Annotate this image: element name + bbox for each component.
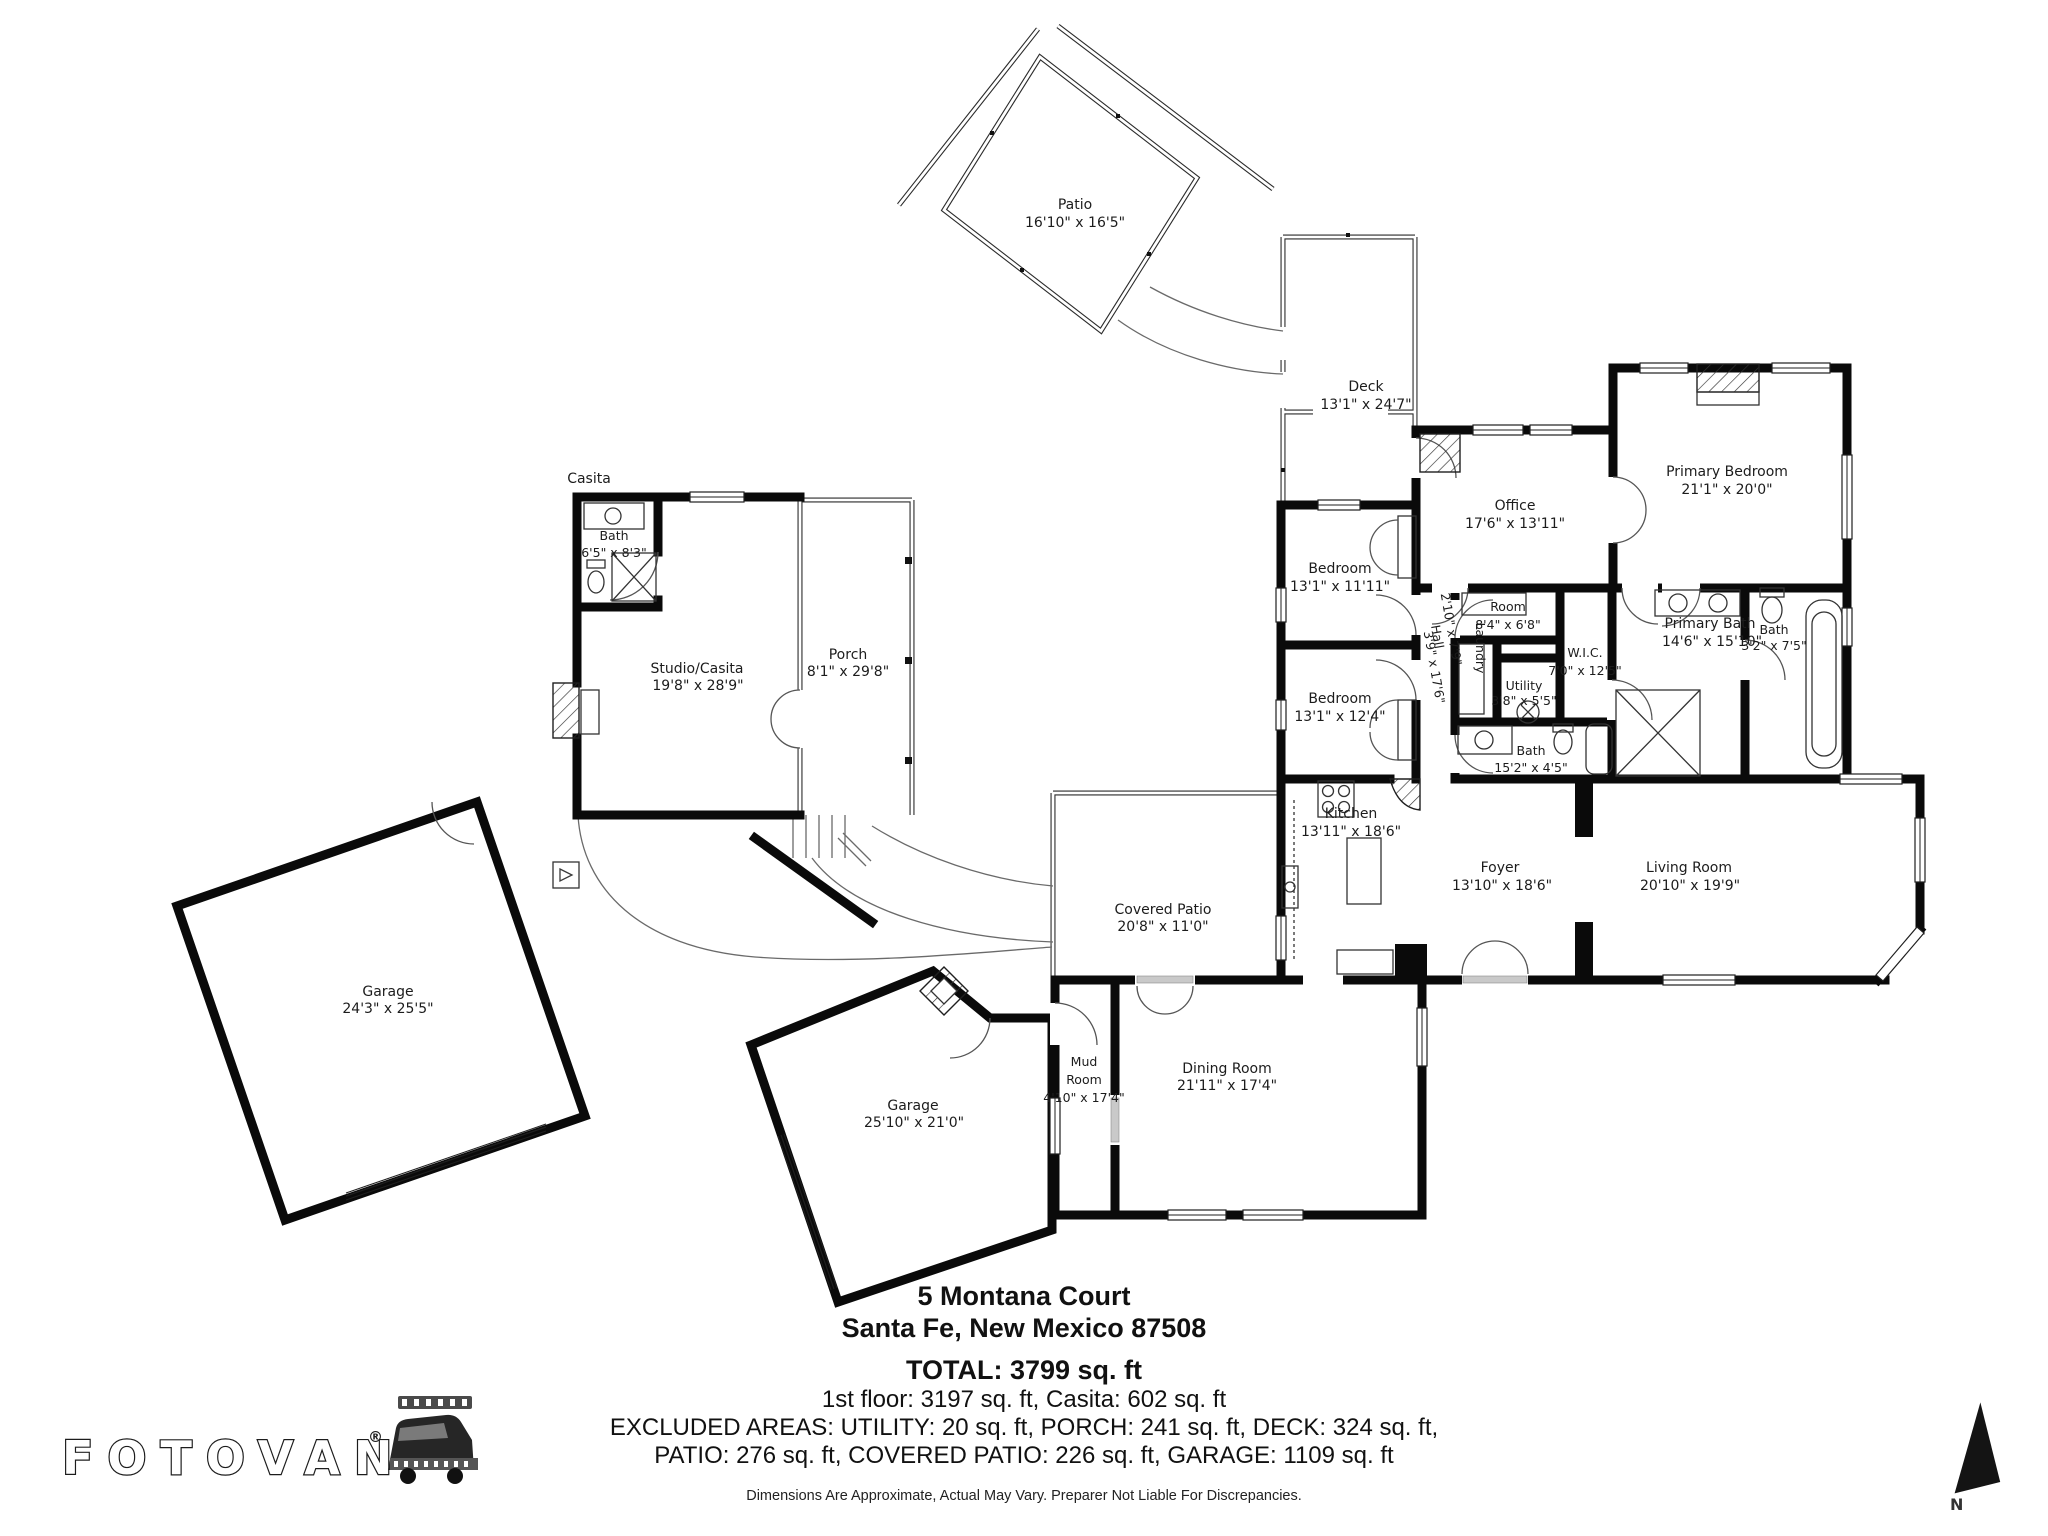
kitchen-island (1347, 838, 1381, 904)
label-foyer: Foyer (1481, 860, 1520, 876)
label-living-room: Living Room (1646, 860, 1732, 876)
label-bath-main-dims: 15'2" x 4'5" (1494, 760, 1567, 775)
walls (177, 368, 1920, 1302)
label-utility: Utility (1506, 678, 1543, 693)
compass: N (1935, 1402, 2000, 1514)
label-deck: Deck (1348, 379, 1384, 395)
label-dining-room: Dining Room (1182, 1061, 1272, 1077)
garage-angled-door (781, 1135, 834, 1289)
label-porch: Porch (829, 647, 868, 663)
casita-fireplace (553, 683, 579, 738)
label-studio-casita: Studio/Casita (651, 661, 744, 677)
label-garage-angled-dims: 25'10" x 21'0" (864, 1115, 964, 1131)
room-labels: Patio 16'10" x 16'5" Deck 13'1" x 24'7" … (342, 197, 1806, 1131)
address-line2: Santa Fe, New Mexico 87508 (842, 1313, 1207, 1343)
label-covered-patio: Covered Patio (1115, 902, 1212, 918)
branding: FOTOVAN ® (62, 1396, 478, 1485)
label-garage-left: Garage (362, 984, 413, 1000)
label-primary-bedroom: Primary Bedroom (1666, 464, 1788, 480)
label-deck-dims: 13'1" x 24'7" (1320, 397, 1411, 413)
label-living-room-dims: 20'10" x 19'9" (1640, 878, 1740, 894)
label-primary-bedroom-dims: 21'1" x 20'0" (1681, 482, 1772, 498)
label-bedroom2: Bedroom (1308, 691, 1371, 707)
label-bath-small: Bath (1759, 622, 1788, 637)
garage-left-door (346, 1127, 546, 1196)
label-office-dims: 17'6" x 13'11" (1465, 516, 1565, 532)
label-foyer-dims: 13'10" x 18'6" (1452, 878, 1552, 894)
label-porch-dims: 8'1" x 29'8" (807, 664, 889, 680)
label-office: Office (1495, 498, 1536, 514)
walkways (553, 114, 1350, 960)
disclaimer: Dimensions Are Approximate, Actual May V… (746, 1488, 1302, 1504)
bath-counter (1458, 726, 1512, 754)
label-dining-room-dims: 21'11" x 17'4" (1177, 1078, 1277, 1094)
floor-plan-canvas: Patio 16'10" x 16'5" Deck 13'1" x 24'7" … (0, 0, 2048, 1536)
floor-areas: 1st floor: 3197 sq. ft, Casita: 602 sq. … (822, 1386, 1227, 1413)
label-kitchen-dims: 13'11" x 18'6" (1301, 824, 1401, 840)
office-fireplace (1420, 434, 1460, 472)
kitchen-pantry (1390, 779, 1420, 810)
label-studio-casita-dims: 19'8" x 28'9" (652, 678, 743, 694)
label-garage-left-dims: 24'3" x 25'5" (342, 1001, 433, 1017)
label-mud-room-dims: 4'10" x 17'4" (1043, 1090, 1124, 1105)
bath-toilet (1554, 730, 1572, 754)
label-covered-patio-dims: 20'8" x 11'0" (1117, 919, 1208, 935)
label-bedroom2-dims: 13'1" x 12'4" (1294, 709, 1385, 725)
label-casita-bath: Bath (599, 528, 628, 543)
label-kitchen: Kitchen (1325, 806, 1378, 822)
label-garage-angled: Garage (887, 1098, 938, 1114)
footer: 5 Montana Court Santa Fe, New Mexico 875… (610, 1281, 1438, 1504)
foyer-bench (1337, 950, 1393, 974)
total-area: TOTAL: 3799 sq. ft (906, 1355, 1142, 1385)
label-bath-main: Bath (1516, 743, 1545, 758)
floor-plan-page: Patio 16'10" x 16'5" Deck 13'1" x 24'7" … (0, 0, 2048, 1536)
label-mud-room-1: Mud (1071, 1054, 1098, 1069)
label-patio: Patio (1058, 197, 1092, 213)
label-wic-dims: 7'0" x 12'5" (1548, 663, 1621, 678)
casita-toilet (588, 571, 604, 593)
label-bedroom1: Bedroom (1308, 561, 1371, 577)
label-casita-area: Casita (567, 471, 611, 487)
north-label: N (1950, 1495, 1963, 1514)
label-laundry: Laundry (1473, 623, 1488, 675)
primary-bedroom-fireplace (1697, 364, 1759, 392)
north-arrow-icon (1935, 1402, 2000, 1493)
fotovan-logo-text: FOTOVAN (62, 1431, 406, 1485)
label-casita-bath-dims: 6'5" x 8'3" (581, 545, 647, 560)
casita-sink-counter (584, 503, 644, 529)
address-line1: 5 Montana Court (918, 1281, 1131, 1311)
registered-mark: ® (368, 1428, 383, 1446)
small-bath-toilet (1762, 597, 1782, 623)
label-bath-small-dims: 3'2" x 7'5" (1741, 638, 1807, 653)
label-patio-dims: 16'10" x 16'5" (1025, 215, 1125, 231)
label-room: Room (1490, 599, 1526, 614)
label-primary-bath: Primary Bath (1664, 616, 1755, 632)
excluded-areas-line2: PATIO: 276 sq. ft, COVERED PATIO: 226 sq… (654, 1442, 1394, 1469)
excluded-areas-line1: EXCLUDED AREAS: UTILITY: 20 sq. ft, PORC… (610, 1414, 1438, 1441)
label-bedroom1-dims: 13'1" x 11'11" (1290, 579, 1390, 595)
label-mud-room-2: Room (1066, 1072, 1102, 1087)
label-wic: W.I.C. (1567, 645, 1602, 660)
label-utility-dims: 3'8" x 5'5" (1491, 693, 1557, 708)
